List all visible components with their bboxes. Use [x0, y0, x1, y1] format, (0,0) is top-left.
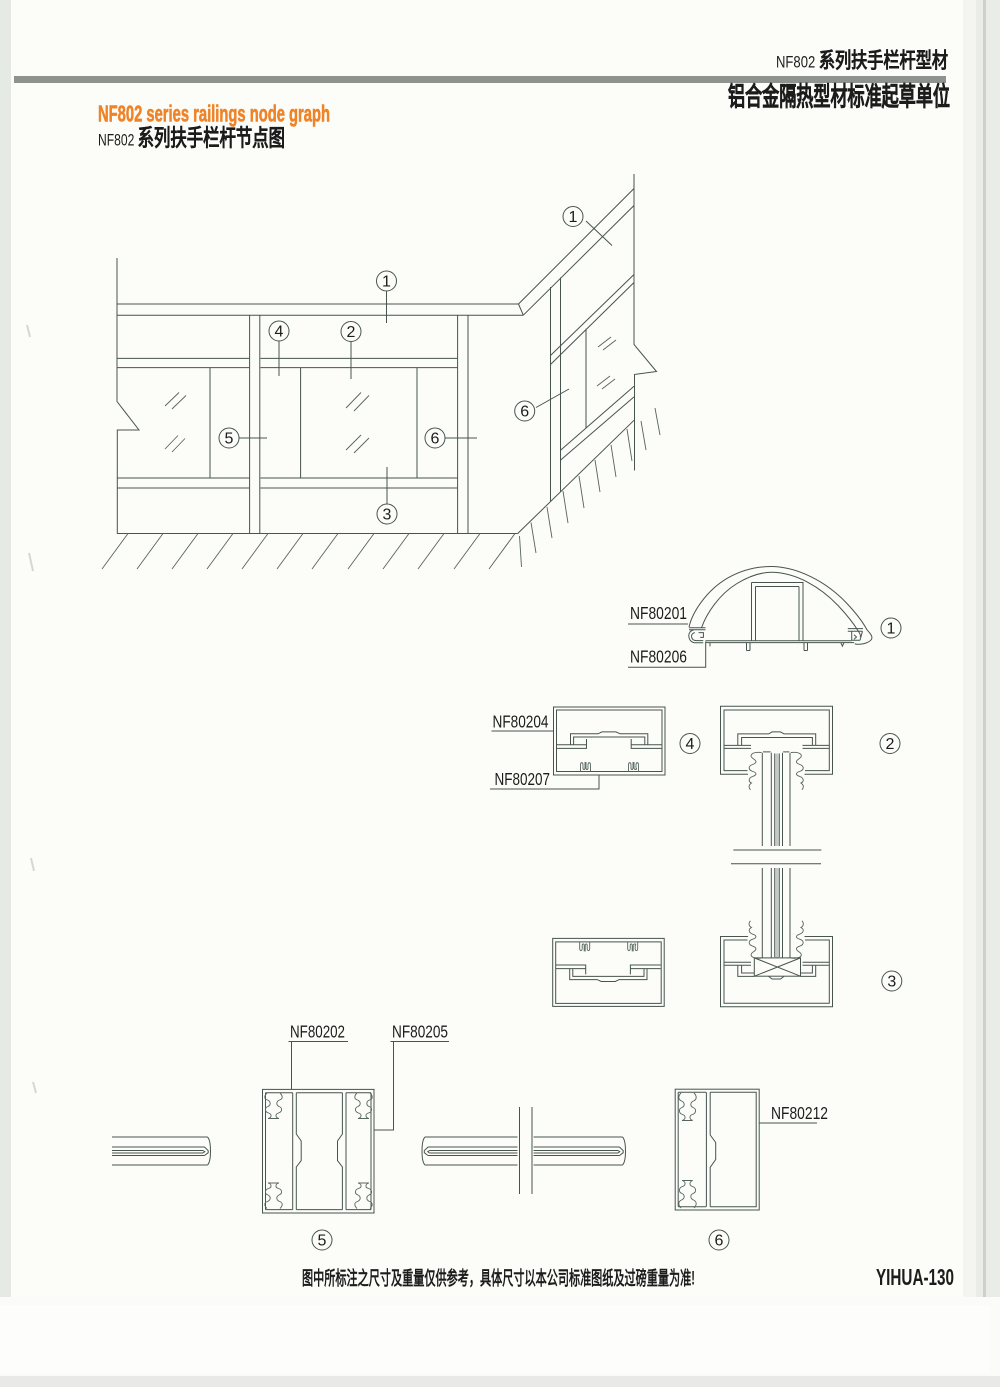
svg-text:6: 6 [520, 404, 529, 421]
svg-text:6: 6 [431, 431, 440, 448]
svg-text:NF80202: NF80202 [290, 1022, 345, 1042]
svg-text:NF80204: NF80204 [493, 712, 549, 732]
svg-text:YIHUA-130: YIHUA-130 [876, 1264, 954, 1290]
svg-text:5: 5 [318, 1233, 327, 1250]
svg-text:NF80206: NF80206 [630, 647, 687, 667]
svg-text:4: 4 [275, 324, 284, 341]
svg-text:1: 1 [887, 621, 896, 638]
svg-text:铝合金隔热型材标准起草单位: 铝合金隔热型材标准起草单位 [728, 82, 950, 112]
svg-text:2: 2 [347, 324, 356, 341]
svg-text:图中所标注之尺寸及重量仅供参考，具体尺寸以本公司标准图纸及过: 图中所标注之尺寸及重量仅供参考，具体尺寸以本公司标准图纸及过磅重量为准! [302, 1267, 695, 1290]
svg-text:NF802 系列扶手栏杆型材: NF802 系列扶手栏杆型材 [776, 49, 948, 73]
svg-text:NF80207: NF80207 [495, 769, 551, 789]
svg-text:1: 1 [382, 274, 391, 291]
svg-text:NF80201: NF80201 [630, 603, 687, 623]
svg-text:NF802 series railings node gra: NF802 series railings node graph [98, 101, 330, 127]
svg-text:2: 2 [886, 736, 895, 753]
svg-text:6: 6 [715, 1233, 724, 1250]
svg-text:3: 3 [383, 507, 392, 524]
svg-text:NF80205: NF80205 [392, 1022, 448, 1042]
svg-text:1: 1 [569, 209, 578, 226]
svg-text:3: 3 [887, 974, 896, 991]
svg-text:5: 5 [225, 431, 234, 448]
svg-text:NF80212: NF80212 [771, 1103, 828, 1123]
svg-text:4: 4 [686, 736, 695, 753]
